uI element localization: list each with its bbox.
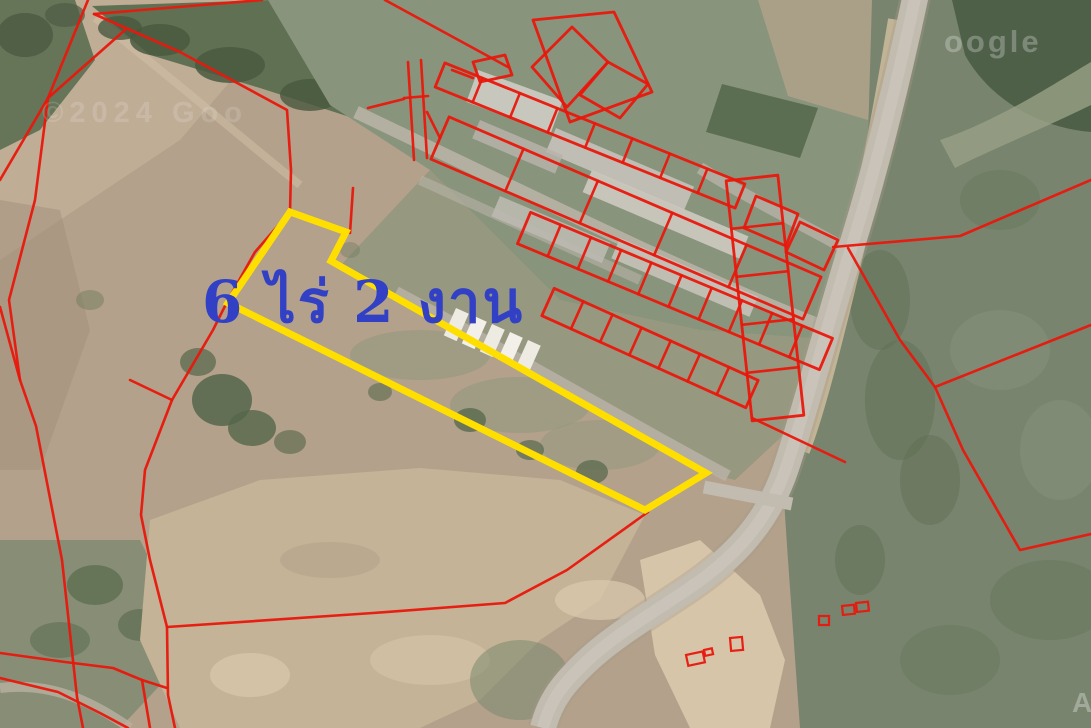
marsh-light: [950, 310, 1050, 390]
marsh-clump: [835, 525, 885, 595]
tree-clump: [228, 410, 276, 446]
watermark-bottom-right: A: [1072, 687, 1091, 718]
map-canvas: ©2024 Goo oogle A 6 ไร่ 2 งาน: [0, 0, 1091, 728]
dirt-blob: [210, 653, 290, 697]
watermark-top-left: ©2024 Goo: [42, 97, 248, 129]
tree-clump: [67, 565, 123, 605]
dirt-streak: [280, 542, 380, 578]
marsh-clump: [900, 625, 1000, 695]
marsh-clump: [900, 435, 960, 525]
tree-clump: [180, 348, 216, 376]
tree-clump: [76, 290, 104, 310]
tree-clump: [274, 430, 306, 454]
satellite-map-image: ©2024 Goo oogle A 6 ไร่ 2 งาน: [0, 0, 1091, 728]
tree-clump: [30, 622, 90, 658]
watermark-top-right: oogle: [944, 24, 1042, 59]
marsh-clump: [960, 170, 1040, 230]
area-label: 6 ไร่ 2 งาน: [202, 268, 524, 336]
